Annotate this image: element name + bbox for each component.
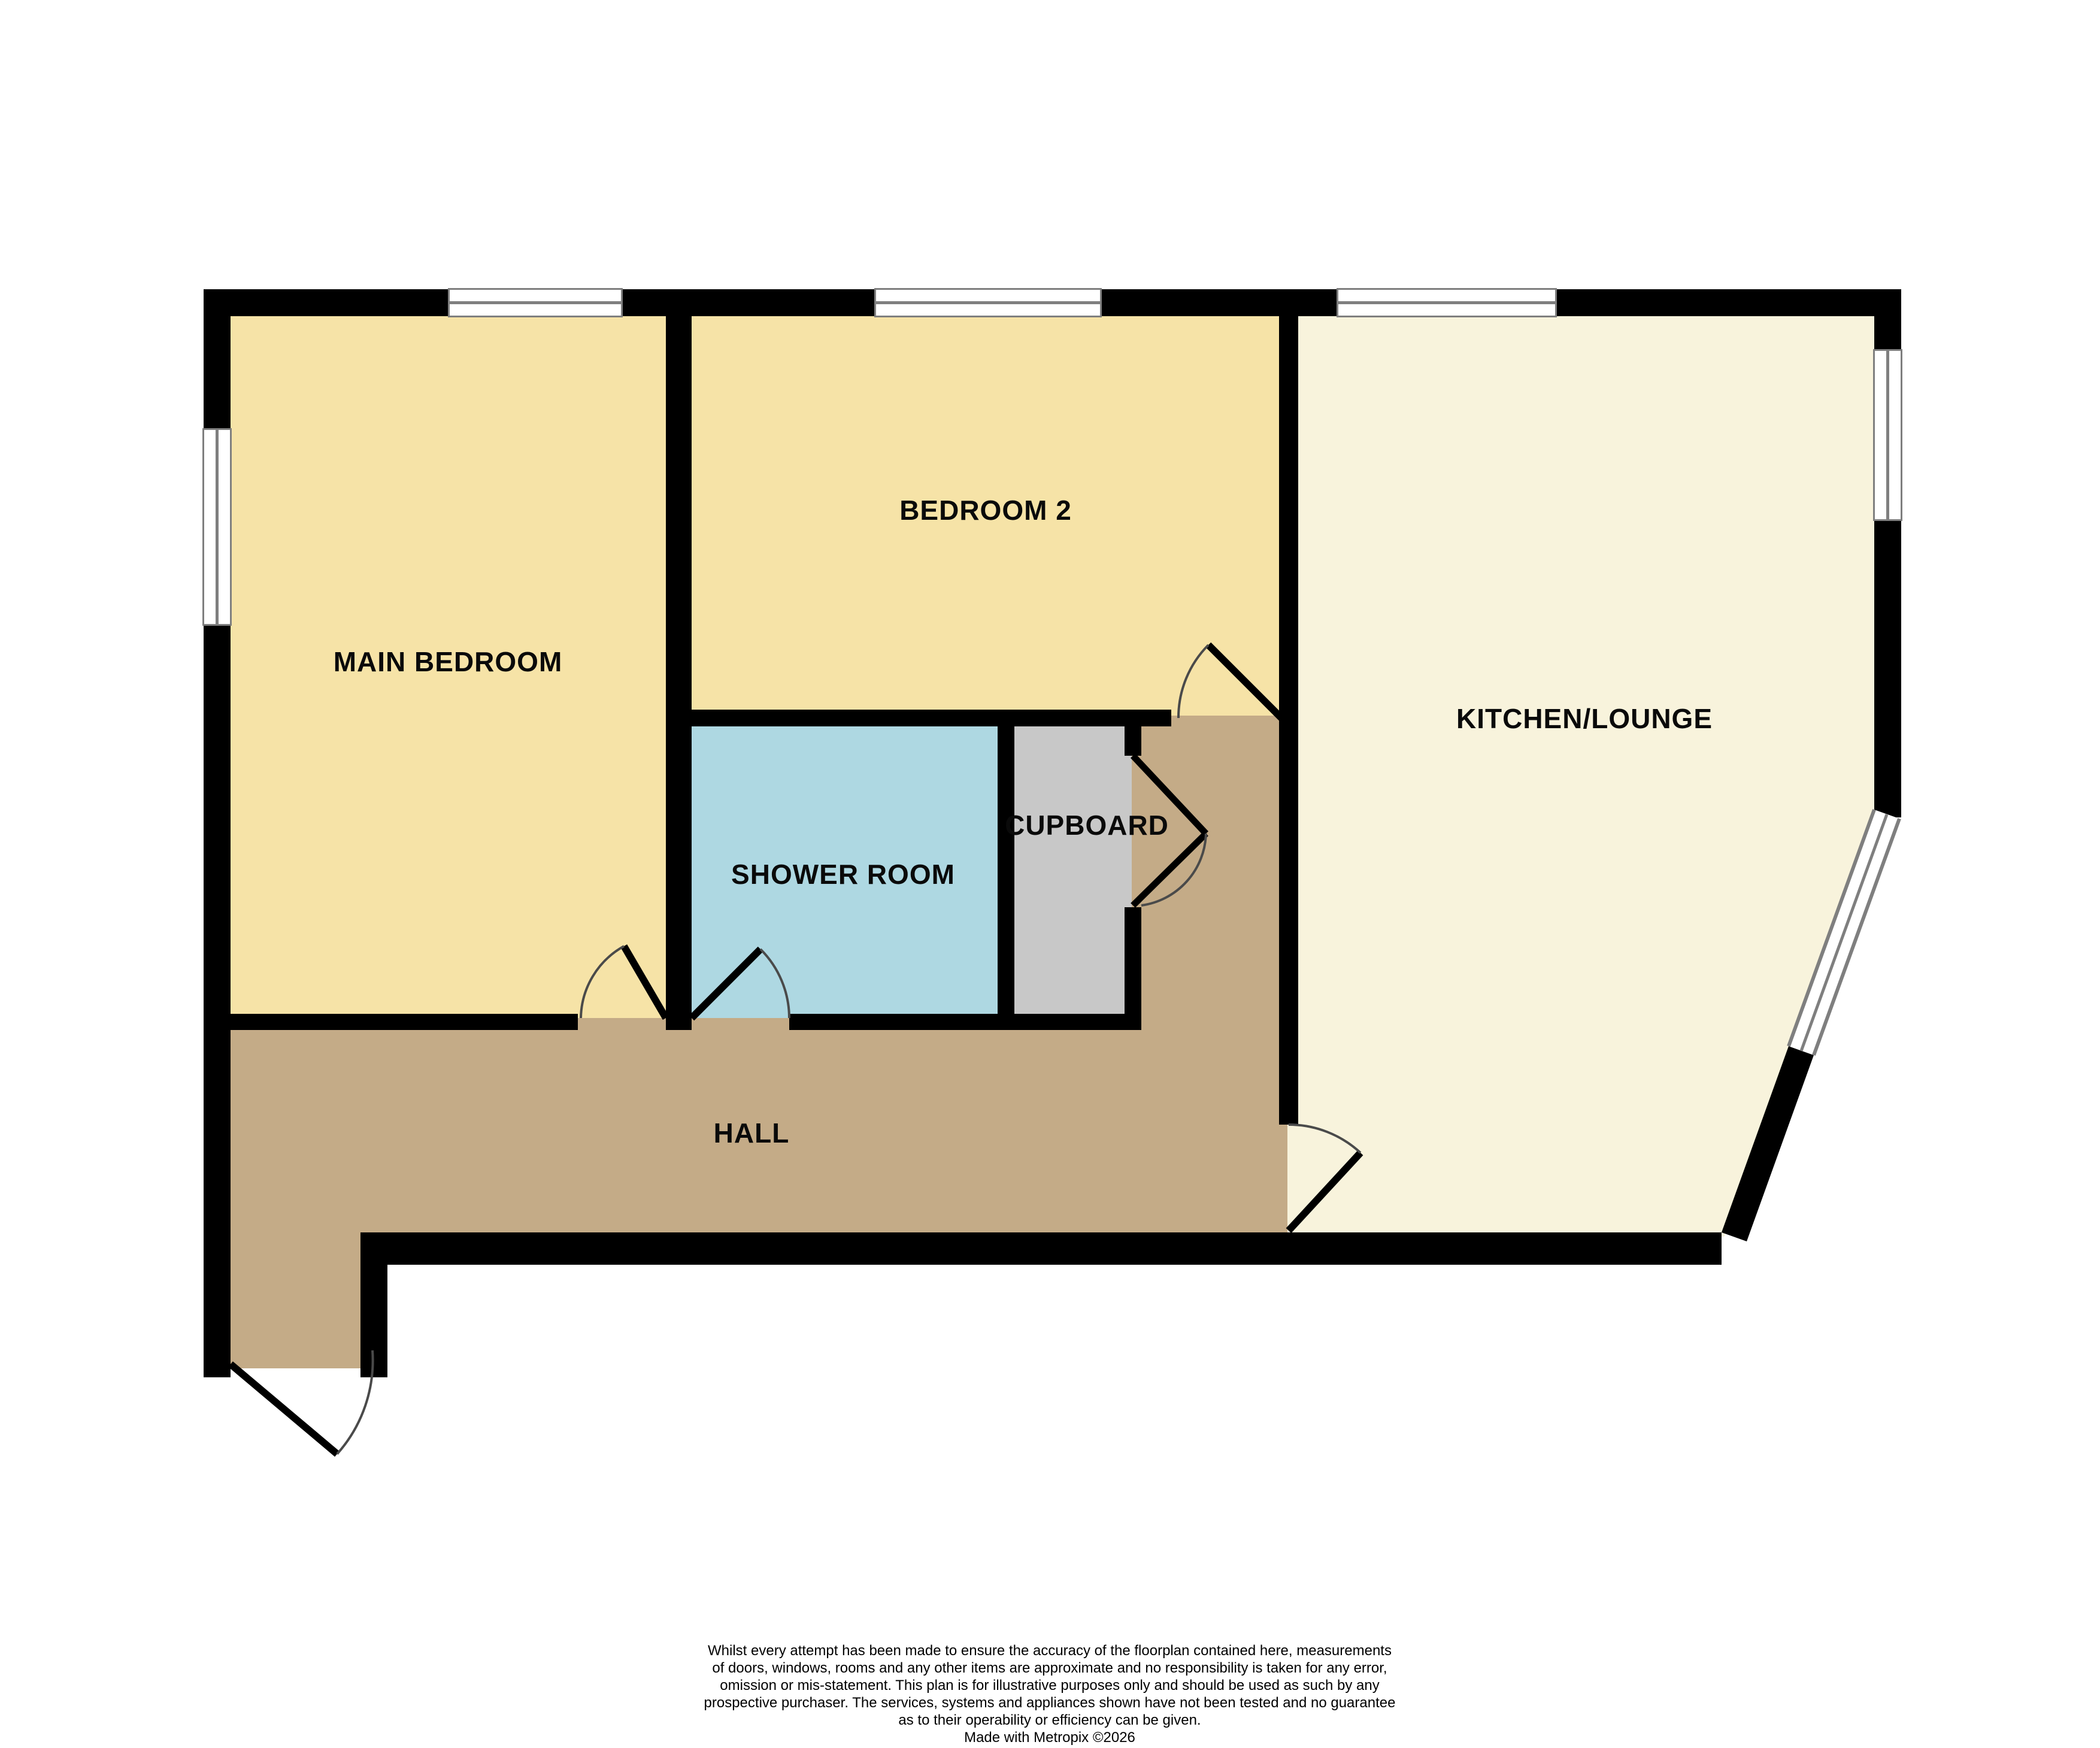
made-with-credit: Made with Metropix ©2026 — [571, 1729, 1529, 1746]
door-shower-room — [692, 949, 789, 1018]
door-entrance — [231, 1350, 373, 1454]
window-kitchen-diagonal — [1789, 810, 1899, 1055]
disclaimer-text: Whilst every attempt has been made to en… — [571, 1642, 1529, 1746]
kitchen-lounge-label: KITCHEN/LOUNGE — [1456, 702, 1713, 735]
floorplan-page: MAIN BEDROOM BEDROOM 2 KITCHEN/LOUNGE SH… — [0, 0, 2100, 1748]
bedroom-2-label: BEDROOM 2 — [899, 494, 1072, 526]
disclaimer-line: prospective purchaser. The services, sys… — [571, 1694, 1529, 1711]
shower-room-label: SHOWER ROOM — [731, 858, 955, 890]
wall-kitchen-diagonal — [1722, 1046, 1814, 1241]
door-main-bedroom — [581, 946, 666, 1018]
door-bedroom-2 — [1178, 645, 1281, 718]
main-bedroom-label: MAIN BEDROOM — [334, 646, 563, 678]
disclaimer-line: Whilst every attempt has been made to en… — [571, 1642, 1529, 1659]
cupboard-label: CUPBOARD — [1005, 809, 1169, 841]
doors-and-diagonals-layer — [0, 0, 2100, 1748]
disclaimer-line: of doors, windows, rooms and any other i… — [571, 1659, 1529, 1677]
disclaimer-line: as to their operability or efficiency ca… — [571, 1711, 1529, 1729]
hall-label: HALL — [714, 1117, 790, 1149]
door-kitchen-lounge — [1289, 1125, 1360, 1231]
disclaimer-line: omission or mis-statement. This plan is … — [571, 1677, 1529, 1694]
